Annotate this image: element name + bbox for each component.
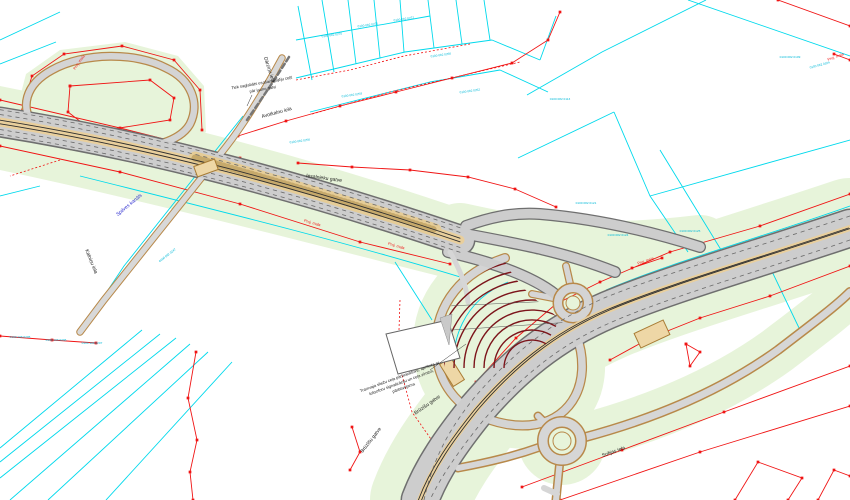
site-plan-canvas: Tiek saglabāts esošais gājēju ceļš pār j… [0,0,850,500]
parcel-number-label: 0100 106 0207 [82,341,103,345]
parcel-number-label: 0100 082 0125 [680,229,701,233]
street-label-bruzisu-2: Brūzīšu gatve [359,426,383,454]
parcel-number-label: 0100 106 0205 [10,335,31,339]
parcel-number-label: 0100 082 0272 [393,16,414,23]
parcel-number-label: 0100 082 0247 [158,247,177,263]
parcel-number-label: 0100 082 0109 [780,55,801,59]
parcel-number-label: 0100 082 0124 [608,233,629,237]
road-interchange-plan: Tiek saglabāts esošais gājēju ceļš pār j… [0,0,850,500]
roundabout-1 [558,288,588,318]
street-label-avotkalnu: Avotkalnu iela [261,106,293,120]
roundabout2-island [553,432,571,450]
parcel-number-label: 0100 082 0262 [459,88,480,95]
roundabout-2 [543,422,581,460]
parcel-number-label: 0100 082 0256 [289,138,310,145]
street-label-kalninu: Kalniņu iela [83,249,98,275]
parcel-number-label: 0100 082 0121 [576,201,597,205]
parcel-number-label: 0100 082 0266 [430,52,451,59]
parcel-number-label: 0100 082 0104 [809,60,830,69]
parcel-number-label: 0100 082 0259 [341,92,362,99]
parcel-number-label: 0100 082 0113 [550,97,571,101]
roundabout1-island [566,296,580,310]
parcel-number-label: 0100 082 0270 [321,32,342,39]
parcel-number-label: 0100 106 0206 [46,338,67,342]
